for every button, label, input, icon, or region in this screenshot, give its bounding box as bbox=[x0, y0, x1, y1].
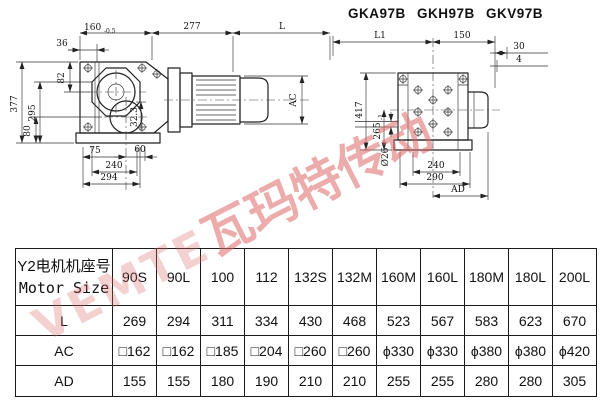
dim-L1: L1 bbox=[374, 31, 386, 41]
cell-AC-132M: □260 bbox=[333, 336, 377, 366]
cell-AD-112: 190 bbox=[245, 366, 289, 397]
cell-L-100: 311 bbox=[201, 306, 245, 336]
column-header-100: 100 bbox=[201, 249, 245, 306]
table-row-AD: AD155155180190210210255255280280305 bbox=[16, 366, 597, 397]
cell-L-132S: 430 bbox=[289, 306, 333, 336]
dim-diameter-26: Ø26 bbox=[380, 147, 391, 166]
dim-240-side: 240 bbox=[105, 161, 122, 171]
cell-AD-180L: 280 bbox=[509, 366, 553, 397]
dim-417: 417 bbox=[355, 101, 365, 118]
dimension-drawings: 160 -0.5 277 L 36 377 295 82 80 AC 32.3 … bbox=[0, 0, 600, 250]
cell-AD-132M: 210 bbox=[333, 366, 377, 397]
cell-AD-90S: 155 bbox=[113, 366, 157, 397]
cell-L-112: 334 bbox=[245, 306, 289, 336]
dim-150: 150 bbox=[453, 31, 470, 41]
dim-377: 377 bbox=[10, 95, 20, 112]
table-header-motor-size: Y2电机机座号Motor Size bbox=[16, 249, 113, 306]
dim-75: 75 bbox=[89, 146, 101, 156]
dim-160-tol: -0.5 bbox=[104, 28, 116, 35]
dimension-table: Y2电机机座号Motor Size90S90L100112132S132M160… bbox=[15, 248, 597, 397]
dim-277: 277 bbox=[183, 22, 200, 32]
cell-AD-90L: 155 bbox=[157, 366, 201, 397]
cell-AC-100: □185 bbox=[201, 336, 245, 366]
cell-AD-160L: 255 bbox=[421, 366, 465, 397]
cell-AD-200L: 305 bbox=[553, 366, 597, 397]
cell-L-90S: 269 bbox=[113, 306, 157, 336]
column-header-180M: 180M bbox=[465, 249, 509, 306]
cell-L-132M: 468 bbox=[333, 306, 377, 336]
dim-60: 60 bbox=[134, 145, 146, 155]
dim-294: 294 bbox=[100, 173, 117, 183]
cell-AC-180M: ϕ380 bbox=[465, 336, 509, 366]
dim-36: 36 bbox=[56, 39, 68, 49]
side-view-drawing bbox=[16, 33, 330, 190]
dim-30: 30 bbox=[513, 42, 525, 52]
dim-L: L bbox=[279, 22, 285, 32]
dim-80: 80 bbox=[23, 125, 33, 137]
dim-160: 160 bbox=[84, 23, 101, 33]
cell-AC-90S: □162 bbox=[113, 336, 157, 366]
column-header-180L: 180L bbox=[509, 249, 553, 306]
cell-AD-160M: 255 bbox=[377, 366, 421, 397]
cell-L-200L: 670 bbox=[553, 306, 597, 336]
table-row-AC: AC□162□162□185□204□260□260ϕ330ϕ330ϕ380ϕ3… bbox=[16, 336, 597, 366]
cell-AC-160L: ϕ330 bbox=[421, 336, 465, 366]
column-header-132S: 132S bbox=[289, 249, 333, 306]
cell-L-160L: 567 bbox=[421, 306, 465, 336]
datasheet-page: VEMTE瓦玛特传动 GKA97B GKH97B GKV97B bbox=[0, 0, 600, 410]
cell-AC-180L: ϕ380 bbox=[509, 336, 553, 366]
dim-290: 290 bbox=[426, 173, 443, 183]
cell-AD-132S: 210 bbox=[289, 366, 333, 397]
column-header-90S: 90S bbox=[113, 249, 157, 306]
dim-240-front: 240 bbox=[427, 161, 444, 171]
column-header-160M: 160M bbox=[377, 249, 421, 306]
column-header-200L: 200L bbox=[553, 249, 597, 306]
cell-L-180M: 583 bbox=[465, 306, 509, 336]
dim-82: 82 bbox=[57, 72, 67, 83]
motor-size-label-en: Motor Size bbox=[16, 279, 112, 299]
dim-4: 4 bbox=[516, 55, 522, 65]
dim-265: 265 bbox=[373, 122, 383, 139]
table-row-L: L269294311334430468523567583623670 bbox=[16, 306, 597, 336]
motor-size-label-cn: Y2电机机座号 bbox=[16, 256, 112, 279]
column-header-90L: 90L bbox=[157, 249, 201, 306]
column-header-112: 112 bbox=[245, 249, 289, 306]
cell-AC-90L: □162 bbox=[157, 336, 201, 366]
dim-AD: AD bbox=[450, 185, 465, 195]
cell-AC-200L: ϕ420 bbox=[553, 336, 597, 366]
cell-AC-132S: □260 bbox=[289, 336, 333, 366]
column-header-160L: 160L bbox=[421, 249, 465, 306]
cell-AD-100: 180 bbox=[201, 366, 245, 397]
row-label-L: L bbox=[16, 306, 113, 336]
dim-AC: AC bbox=[289, 93, 299, 107]
dim-32-3: 32.3 bbox=[130, 107, 140, 127]
cell-AC-160M: ϕ330 bbox=[377, 336, 421, 366]
row-label-AC: AC bbox=[16, 336, 113, 366]
cell-L-160M: 523 bbox=[377, 306, 421, 336]
cell-AD-180M: 280 bbox=[465, 366, 509, 397]
row-label-AD: AD bbox=[16, 366, 113, 397]
cell-L-90L: 294 bbox=[157, 306, 201, 336]
cell-L-180L: 623 bbox=[509, 306, 553, 336]
dim-265-tol: -1 bbox=[378, 114, 385, 120]
column-header-132M: 132M bbox=[333, 249, 377, 306]
dim-295: 295 bbox=[28, 104, 38, 121]
cell-AC-112: □204 bbox=[245, 336, 289, 366]
